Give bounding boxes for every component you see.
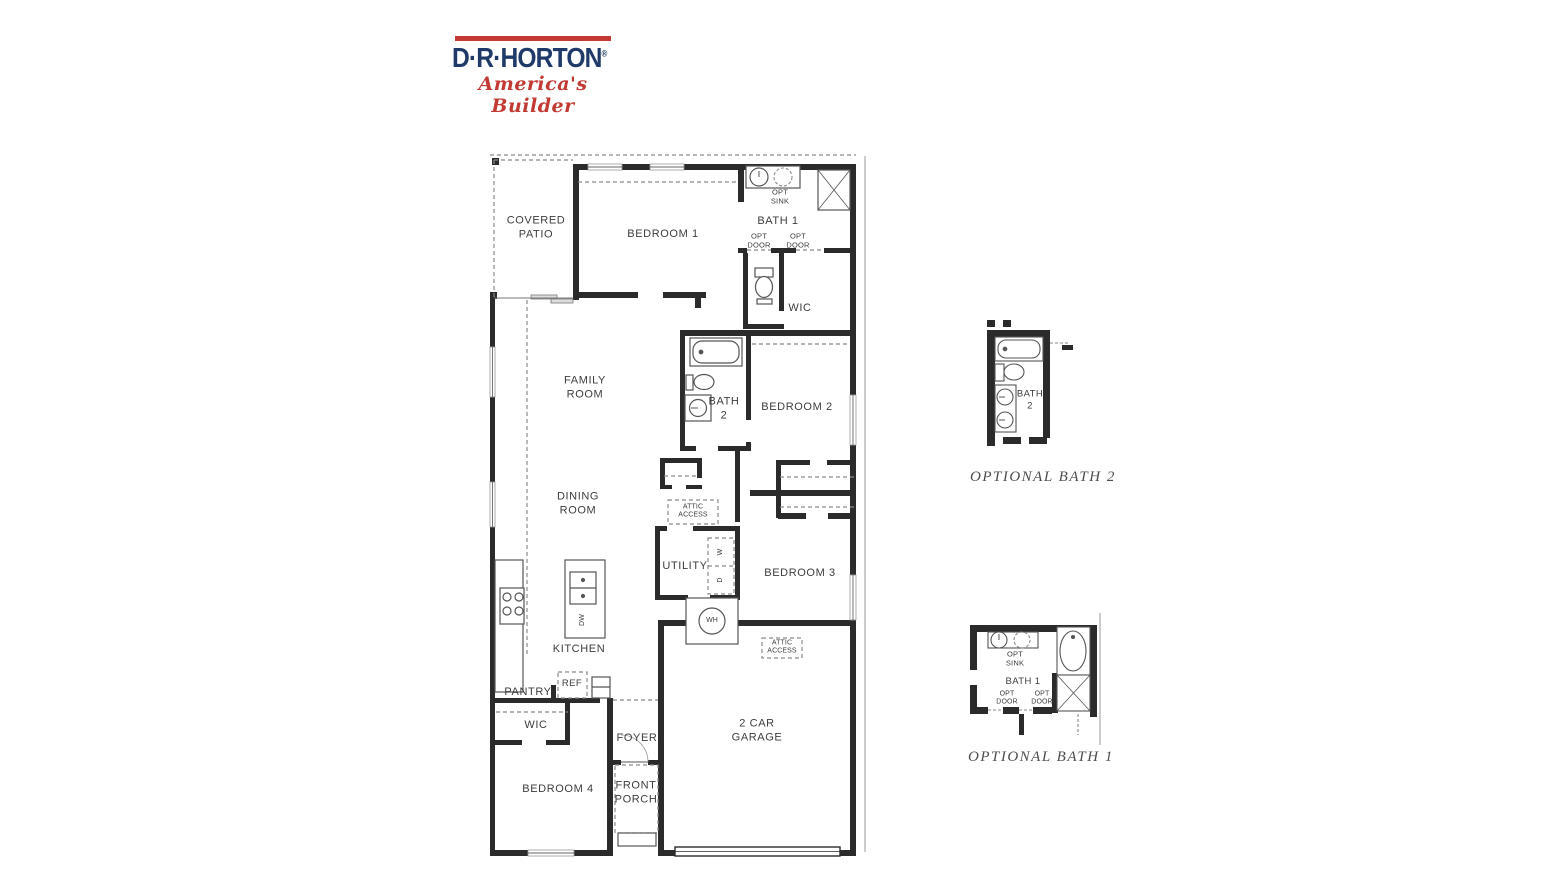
room-label-bedroom1: BEDROOM 1 bbox=[627, 227, 698, 241]
inset-opt-door-2: OPT DOOR bbox=[1031, 691, 1052, 708]
bath2-toilet-bowl bbox=[694, 375, 714, 390]
label-dryer: D bbox=[717, 577, 725, 582]
label-refrigerator: REF bbox=[562, 678, 582, 690]
optional-bath1-caption: OPTIONAL BATH 1 bbox=[968, 749, 1103, 766]
room-label-bedroom3: BEDROOM 3 bbox=[764, 566, 835, 580]
inset-bath1-opt-sink-label: OPT SINK bbox=[1006, 650, 1024, 669]
room-label-bath1: BATH 1 bbox=[757, 214, 798, 228]
label-water-heater: WH bbox=[706, 617, 718, 625]
optional-bath1-inset: OPT SINK BATH 1 OPT DOOR OPT DOOR bbox=[963, 613, 1103, 748]
room-label-bedroom4: BEDROOM 4 bbox=[522, 782, 593, 796]
porch-step bbox=[618, 833, 656, 846]
fixtures-layer bbox=[495, 166, 850, 856]
kitchen-counter bbox=[495, 560, 523, 692]
label-washer: W bbox=[717, 549, 725, 556]
logo-tagline: America's Builder bbox=[452, 73, 614, 117]
room-label-garage: 2 CAR GARAGE bbox=[732, 717, 783, 746]
drhorton-logo: D·R·HORTON® America's Builder bbox=[452, 36, 614, 117]
toilet-bowl bbox=[1004, 364, 1024, 380]
room-label-dining-room: DINING ROOM bbox=[557, 490, 599, 519]
label-opt-sink: OPT SINK bbox=[771, 188, 789, 207]
toilet-tank bbox=[995, 364, 1004, 381]
optional-bath2-caption: OPTIONAL BATH 2 bbox=[970, 469, 1090, 486]
room-label-covered-patio: COVERED PATIO bbox=[507, 214, 566, 243]
main-floorplan: COVERED PATIO BEDROOM 1 OPT SINK BATH 1 … bbox=[488, 152, 873, 864]
room-label-wic-top: WIC bbox=[788, 301, 811, 315]
label-attic-access-hall: ATTIC ACCESS bbox=[678, 504, 707, 521]
floorplan-page: D·R·HORTON® America's Builder bbox=[0, 0, 1564, 880]
label-opt-door-2: OPT DOOR bbox=[786, 232, 809, 251]
registered-mark: ® bbox=[602, 49, 608, 59]
room-label-wic-bottom: WIC bbox=[524, 718, 547, 732]
label-attic-access-garage: ATTIC ACCESS bbox=[767, 640, 796, 657]
room-label-utility: UTILITY bbox=[662, 559, 707, 573]
inset-bath2-label: BATH 2 bbox=[1017, 389, 1043, 414]
bath2-toilet-tank bbox=[686, 375, 693, 390]
logo-red-bar bbox=[455, 36, 611, 41]
optional-bath2-inset: BATH 2 bbox=[973, 318, 1078, 468]
wic-toilet-tank bbox=[755, 268, 773, 277]
fixtures-layer bbox=[995, 337, 1043, 432]
logo-brand-word: D·R·HORTON bbox=[452, 42, 602, 73]
room-label-bath2: BATH 2 bbox=[709, 395, 740, 424]
label-opt-door-1: OPT DOOR bbox=[747, 232, 770, 251]
room-label-pantry: PANTRY bbox=[504, 685, 551, 699]
inset-opt-door-1: OPT DOOR bbox=[996, 691, 1017, 708]
inset-bath1-label: BATH 1 bbox=[1006, 676, 1041, 688]
label-dishwasher: DW bbox=[579, 614, 587, 626]
room-label-front-porch: FRONT PORCH bbox=[615, 779, 658, 808]
logo-brand-text: D·R·HORTON® bbox=[452, 43, 595, 72]
room-label-kitchen: KITCHEN bbox=[553, 642, 605, 656]
wic-toilet-bowl bbox=[756, 277, 773, 298]
windows-layer bbox=[490, 164, 856, 856]
room-label-family-room: FAMILY ROOM bbox=[564, 374, 606, 403]
room-label-foyer: FOYER bbox=[617, 731, 658, 745]
room-label-bedroom2: BEDROOM 2 bbox=[761, 400, 832, 414]
